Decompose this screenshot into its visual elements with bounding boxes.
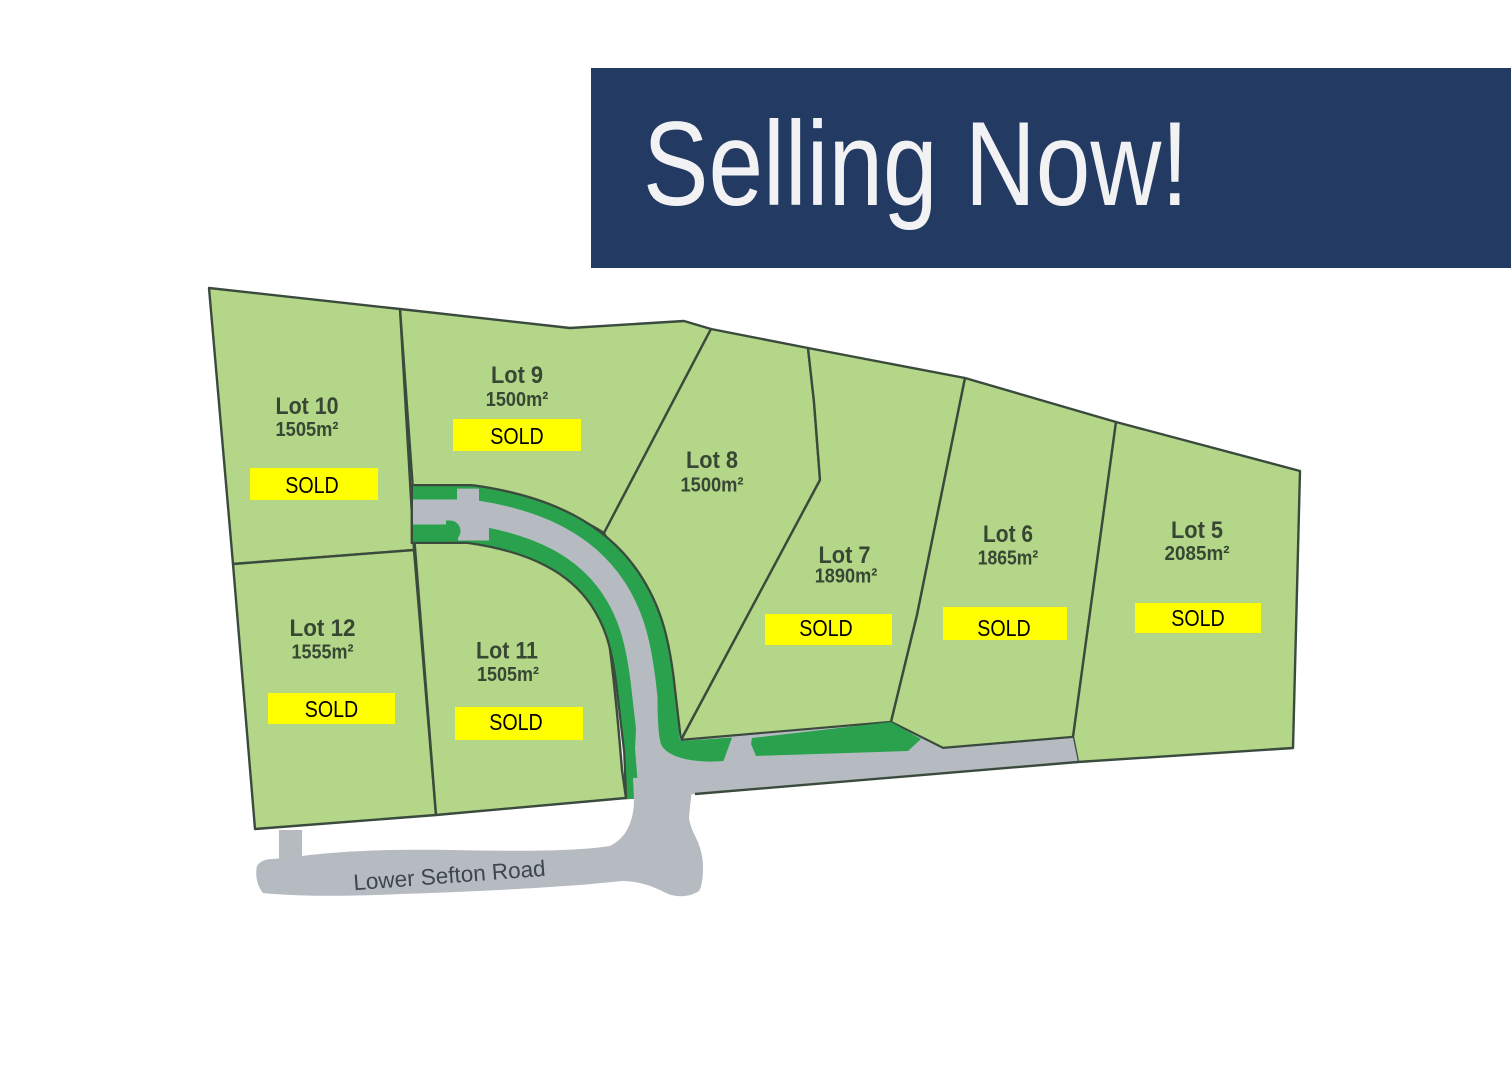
svg-text:Lot 10: Lot 10 [276,393,339,420]
svg-text:SOLD: SOLD [977,615,1031,641]
svg-text:Lot 11: Lot 11 [476,638,538,665]
svg-text:SOLD: SOLD [1171,605,1225,631]
svg-text:1865m²: 1865m² [978,548,1039,570]
svg-text:Lot 8: Lot 8 [686,447,738,474]
svg-text:1505m²: 1505m² [477,664,539,686]
svg-text:1505m²: 1505m² [276,419,339,441]
svg-text:1555m²: 1555m² [292,642,354,664]
svg-text:SOLD: SOLD [490,423,544,449]
svg-text:SOLD: SOLD [285,472,339,498]
svg-text:Lot 5: Lot 5 [1171,517,1223,544]
svg-text:Lot 12: Lot 12 [290,615,356,642]
svg-text:Lot 6: Lot 6 [983,521,1033,548]
svg-text:SOLD: SOLD [305,696,359,722]
svg-text:1500m²: 1500m² [681,475,744,497]
svg-text:Selling Now!: Selling Now! [643,98,1189,232]
svg-text:1500m²: 1500m² [486,389,549,411]
svg-text:1890m²: 1890m² [815,566,878,588]
svg-text:Lot 9: Lot 9 [491,362,543,389]
svg-text:SOLD: SOLD [799,615,853,641]
svg-text:SOLD: SOLD [489,709,543,735]
svg-text:2085m²: 2085m² [1165,543,1230,565]
